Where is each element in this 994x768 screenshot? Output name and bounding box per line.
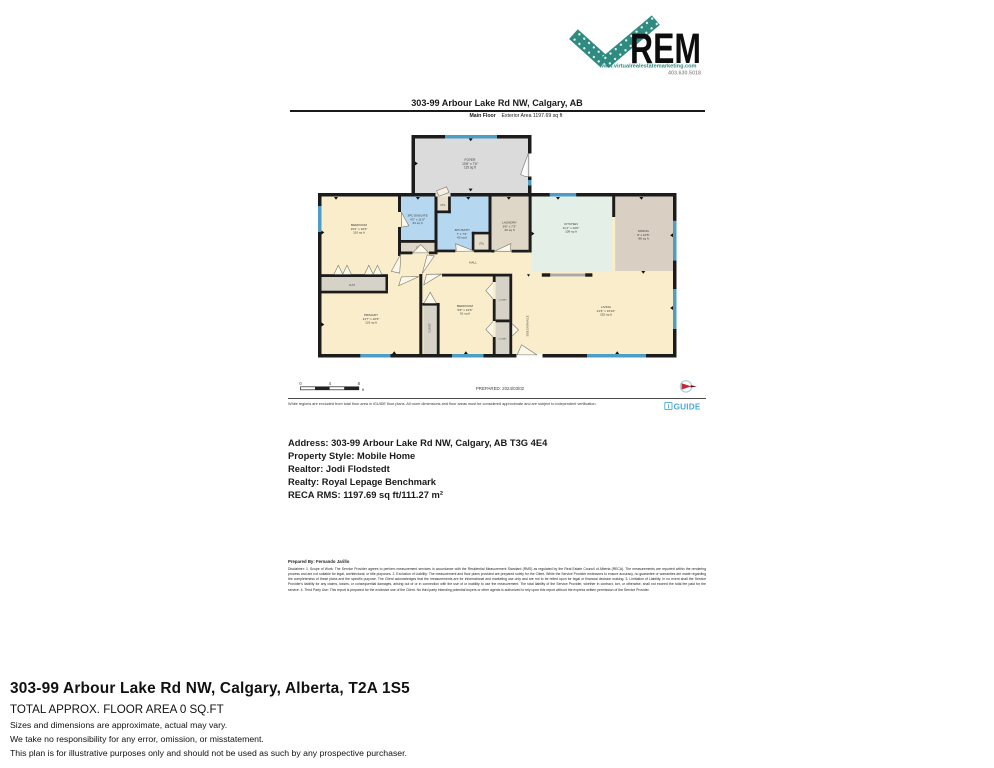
svg-text:ft: ft xyxy=(362,388,365,392)
svg-text:UTIL: UTIL xyxy=(440,204,446,207)
svg-text:0: 0 xyxy=(299,381,302,386)
svg-text:86 sq ft: 86 sq ft xyxy=(638,237,648,241)
svg-text:i: i xyxy=(667,403,669,410)
svg-text:34 sq ft: 34 sq ft xyxy=(412,221,422,225)
svg-text:CLOSET: CLOSET xyxy=(429,323,432,333)
svg-text:115 sq ft: 115 sq ft xyxy=(464,166,476,170)
svg-text:91 sq ft: 91 sq ft xyxy=(460,312,470,316)
svg-text:109 sq ft: 109 sq ft xyxy=(565,230,577,234)
svg-text:CLOSET: CLOSET xyxy=(498,339,507,341)
svg-text:HALL: HALL xyxy=(469,261,477,265)
svg-text:40 sq ft: 40 sq ft xyxy=(504,228,514,232)
svg-text:43 sq ft: 43 sq ft xyxy=(457,236,467,240)
svg-text:CLOSET: CLOSET xyxy=(498,300,507,302)
svg-text:403.630.5018: 403.630.5018 xyxy=(668,71,701,77)
svg-text:110 sq ft: 110 sq ft xyxy=(353,231,365,235)
svg-text:133 sq ft: 133 sq ft xyxy=(365,321,377,325)
svg-text:GUIDE: GUIDE xyxy=(674,402,701,411)
svg-text:SIDE ENTRANCE: SIDE ENTRANCE xyxy=(526,315,530,336)
svg-text:CLST: CLST xyxy=(349,284,356,287)
svg-text:UTIL: UTIL xyxy=(479,243,485,246)
svg-text:252 sq ft: 252 sq ft xyxy=(600,313,612,317)
svg-text:4: 4 xyxy=(329,381,332,386)
svg-text:8: 8 xyxy=(358,381,361,386)
svg-text:www.virtualrealestatemarketing: www.virtualrealestatemarketing.com xyxy=(598,64,696,70)
